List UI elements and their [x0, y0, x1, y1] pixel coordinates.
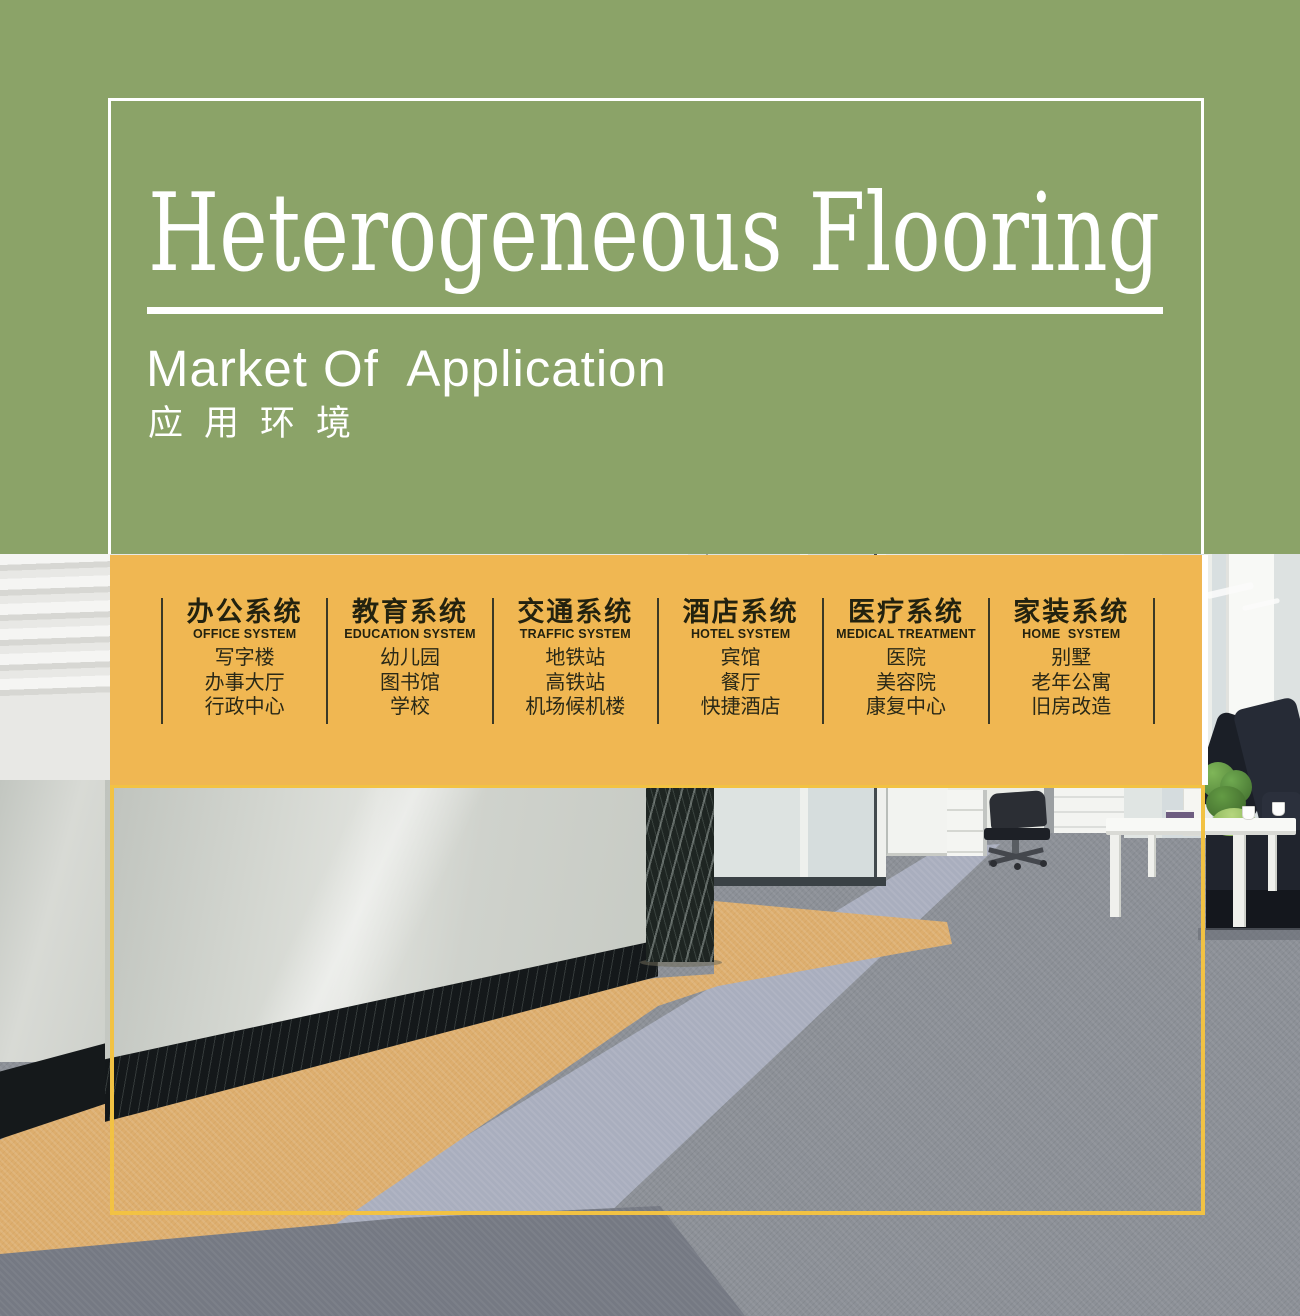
- frame-right-strip: [1202, 555, 1208, 785]
- category-item: 宾馆: [659, 646, 822, 671]
- page-title-text: Heterogeneous Flooring: [148, 171, 1160, 296]
- green-header-section: Heterogeneous Flooring Market Of Applica…: [0, 0, 1300, 554]
- category-item: 幼儿园: [328, 646, 491, 671]
- category-item: 地铁站: [494, 646, 657, 671]
- category-title-zh: 酒店系统: [659, 598, 822, 627]
- category-column: 家装系统 HOME SYSTEM 别墅老年公寓旧房改造: [988, 598, 1153, 724]
- category-item: 行政中心: [163, 695, 326, 720]
- page-title: Heterogeneous Flooring: [148, 170, 1178, 310]
- category-item: 办事大厅: [163, 671, 326, 696]
- category-item: 老年公寓: [990, 671, 1153, 696]
- category-title-en: TRAFFIC SYSTEM: [494, 627, 657, 642]
- category-title-zh: 办公系统: [163, 598, 326, 627]
- sofa-front: [1206, 890, 1300, 930]
- category-item: 餐厅: [659, 671, 822, 696]
- category-title-en: EDUCATION SYSTEM: [328, 627, 491, 642]
- table-leg: [1233, 835, 1246, 927]
- category-column: 医疗系统 MEDICAL TREATMENT 医院美容院康复中心: [822, 598, 987, 724]
- category-item: 医院: [824, 646, 987, 671]
- category-items: 地铁站高铁站机场候机楼: [494, 646, 657, 720]
- category-item: 美容院: [824, 671, 987, 696]
- category-title-zh: 家装系统: [990, 598, 1153, 627]
- table-leg: [1268, 835, 1277, 891]
- category-column: 办公系统 OFFICE SYSTEM 写字楼办事大厅行政中心: [161, 598, 326, 724]
- category-items: 写字楼办事大厅行政中心: [163, 646, 326, 720]
- category-item: 图书馆: [328, 671, 491, 696]
- category-item: 别墅: [990, 646, 1153, 671]
- sofa-seat: [1206, 830, 1300, 890]
- coffee-cup: [1242, 806, 1255, 820]
- category-title-zh: 教育系统: [328, 598, 491, 627]
- category-item: 快捷酒店: [659, 695, 822, 720]
- category-item: 康复中心: [824, 695, 987, 720]
- left-wall: [0, 696, 110, 788]
- category-item: 旧房改造: [990, 695, 1153, 720]
- subtitle-english: Market Of Application: [146, 341, 667, 397]
- coffee-cup: [1272, 802, 1285, 816]
- category-item: 高铁站: [494, 671, 657, 696]
- application-band: 办公系统 OFFICE SYSTEM 写字楼办事大厅行政中心 教育系统 EDUC…: [110, 555, 1205, 785]
- category-items: 别墅老年公寓旧房改造: [990, 646, 1153, 720]
- category-column: 酒店系统 HOTEL SYSTEM 宾馆餐厅快捷酒店: [657, 598, 822, 724]
- brochure-page: Heterogeneous Flooring Market Of Applica…: [0, 0, 1300, 1316]
- title-underline: [147, 307, 1163, 314]
- category-item: 学校: [328, 695, 491, 720]
- reception-desk-left-wing: [0, 780, 110, 1062]
- category-title-en: OFFICE SYSTEM: [163, 627, 326, 642]
- category-item: 机场候机楼: [494, 695, 657, 720]
- sofa-shadow: [1198, 928, 1300, 940]
- category-title-zh: 医疗系统: [824, 598, 987, 627]
- subtitle-chinese: 应用环境: [148, 404, 372, 444]
- category-title-en: HOTEL SYSTEM: [659, 627, 822, 642]
- category-items: 医院美容院康复中心: [824, 646, 987, 720]
- category-title-en: HOME SYSTEM: [990, 627, 1153, 642]
- category-title-en: MEDICAL TREATMENT: [824, 627, 987, 642]
- category-column: 交通系统 TRAFFIC SYSTEM 地铁站高铁站机场候机楼: [492, 598, 657, 724]
- title-white-frame: [108, 98, 1204, 554]
- category-items: 宾馆餐厅快捷酒店: [659, 646, 822, 720]
- wavy-wall-panel: [0, 554, 110, 696]
- category-columns: 办公系统 OFFICE SYSTEM 写字楼办事大厅行政中心 教育系统 EDUC…: [161, 598, 1155, 724]
- category-column: 教育系统 EDUCATION SYSTEM 幼儿园图书馆学校: [326, 598, 491, 724]
- category-title-zh: 交通系统: [494, 598, 657, 627]
- photo-gold-frame: [110, 785, 1205, 1215]
- category-divider: [1153, 598, 1155, 724]
- category-item: 写字楼: [163, 646, 326, 671]
- category-items: 幼儿园图书馆学校: [328, 646, 491, 720]
